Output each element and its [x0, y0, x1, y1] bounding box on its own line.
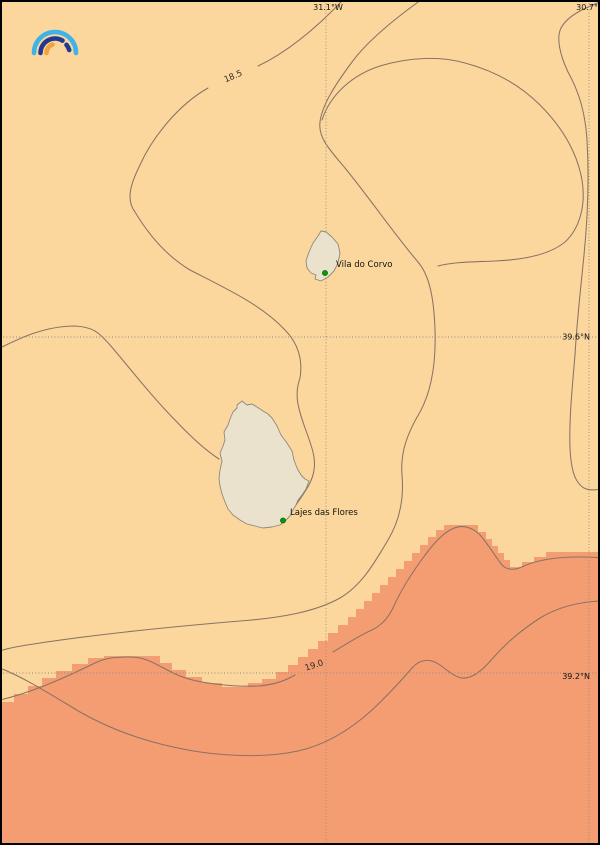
parallel-39-6n-label: 39.6°N — [562, 333, 590, 342]
logo-arc-navy-tip — [67, 45, 70, 50]
place-label-lajes-das-flores: Lajes das Flores — [290, 508, 358, 518]
meridian-30-7w-label: 30.7°W — [576, 3, 600, 12]
map-canvas: 31.1°W 30.7°W 39.6°N 39.2°N 18.5 19.0 Vi… — [0, 0, 600, 845]
parallel-39-2n-label: 39.2°N — [562, 672, 590, 681]
map-frame: 31.1°W 30.7°W 39.6°N 39.2°N 18.5 19.0 Vi… — [0, 0, 600, 845]
place-label-vila-do-corvo: Vila do Corvo — [336, 260, 392, 270]
marker-vila-do-corvo — [322, 270, 327, 275]
marker-lajes-das-flores — [280, 518, 285, 523]
meridian-31-1w-label: 31.1°W — [313, 3, 343, 12]
